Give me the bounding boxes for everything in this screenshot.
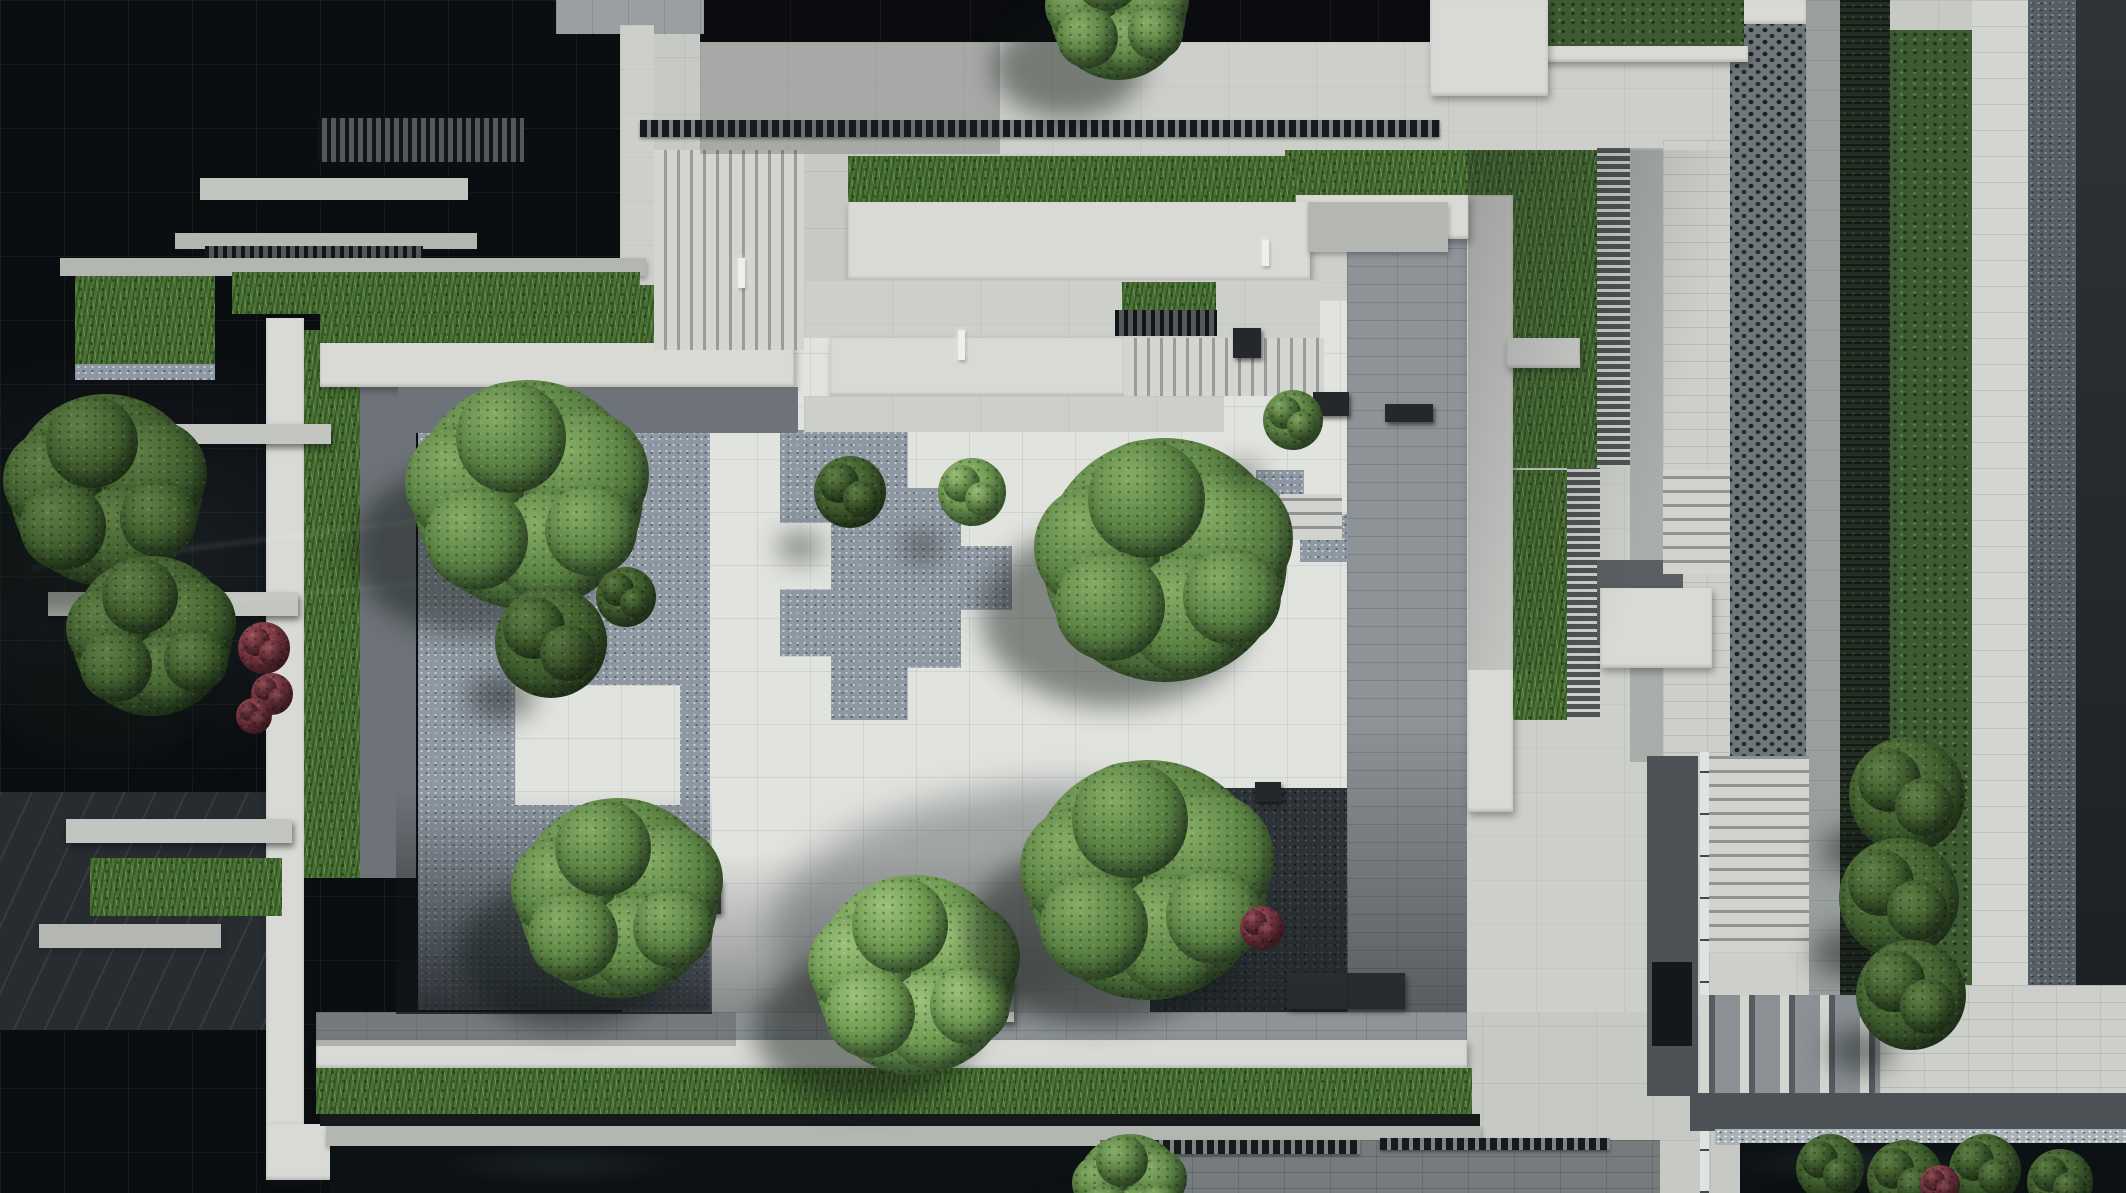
stairs-northwest xyxy=(654,150,804,350)
hedge-blob-a-lobe xyxy=(1895,778,1953,836)
shrub-east-plaza xyxy=(1263,390,1323,450)
planter-grass-north xyxy=(848,156,1296,202)
pool-south xyxy=(330,1146,1100,1193)
gravel-planter-edge xyxy=(75,364,215,380)
shadow-gap-south xyxy=(320,1114,1480,1126)
tree-garden-northwest-lobe xyxy=(545,484,637,576)
grass-planter-b xyxy=(232,272,640,314)
pool-plant-c-lobe xyxy=(1978,1159,2014,1193)
shrub-red-bed-lobe xyxy=(1258,921,1280,943)
tree-garden-center-lobe xyxy=(852,877,948,973)
bridge-connector xyxy=(1430,0,1548,96)
tree-garden-northeast-lobe xyxy=(1183,548,1281,646)
grass-tuft-north-shadow xyxy=(901,533,942,561)
shrub-red-bed-shadow xyxy=(1199,974,1226,992)
seat-cube-a xyxy=(1233,328,1261,358)
shrub-red-c xyxy=(236,698,272,734)
tree-pond-lower-lobe xyxy=(80,630,152,702)
pool-plant-a xyxy=(1796,1134,1864,1193)
shrub-red-c-lobe xyxy=(250,711,268,729)
pool-plant-d xyxy=(2027,1149,2093,1193)
dark-deck-southeast xyxy=(1690,1093,2126,1131)
tree-pond-lower-lobe xyxy=(102,558,179,635)
pond-bridge-c xyxy=(66,819,292,843)
wall-top-left xyxy=(620,25,654,285)
shrub-ball-north-shadow xyxy=(778,532,822,562)
entry-path-lower xyxy=(804,396,1224,432)
grass-tuft-north-lobe xyxy=(965,482,999,516)
shrub-east-plaza-lobe xyxy=(1287,411,1317,441)
stone-path-far-east xyxy=(1972,0,2028,1090)
tree-garden-southwest xyxy=(518,798,718,998)
tree-garden-southwest-lobe xyxy=(633,888,713,968)
tree-pond-upper-lobe xyxy=(120,480,197,557)
shrub-red-bed xyxy=(1240,906,1284,950)
shadow-right-plaza xyxy=(1468,150,1730,670)
grass-planter-a xyxy=(75,276,215,364)
aerial-courtyard-photo xyxy=(0,0,2126,1193)
hedge-blob-b-lobe xyxy=(1887,880,1947,940)
tree-garden-northwest-lobe xyxy=(425,487,529,591)
grass-strip-west xyxy=(304,330,360,878)
tree-garden-center-lobe xyxy=(825,968,915,1058)
stairs-southeast xyxy=(1709,756,1809,952)
white-paver-patch xyxy=(515,685,680,805)
tree-garden-northwest-lobe xyxy=(456,382,566,492)
tree-garden-southeast xyxy=(1028,760,1268,1000)
grass-pond-south xyxy=(90,858,282,916)
path-light-c xyxy=(1262,240,1269,266)
tree-over-roof-lobe xyxy=(1128,5,1182,59)
path-light-a xyxy=(738,258,745,288)
tree-bottom-edge xyxy=(1076,1134,1184,1193)
shrub-red-a-shadow xyxy=(198,692,229,713)
hedge-blob-c-lobe xyxy=(1900,979,1955,1034)
grass-tuft-north xyxy=(938,458,1006,526)
perforated-pergola-roof xyxy=(1730,24,1806,762)
pond-bridge-d xyxy=(39,924,221,948)
shrub-ball-small-lobe xyxy=(620,588,650,618)
pool-plant-a-lobe xyxy=(1823,1158,1857,1192)
tree-bottom-edge-lobe xyxy=(1096,1135,1148,1187)
stairs-entry-east xyxy=(1124,338,1324,396)
hedge-blob-a xyxy=(1849,737,1965,853)
tree-pond-lower-lobe xyxy=(164,628,228,692)
chevron-grate-mid xyxy=(1115,310,1217,336)
shrub-red-a-lobe xyxy=(259,640,285,666)
tree-garden-southwest-lobe xyxy=(528,891,618,981)
shrub-red-c-shadow xyxy=(193,764,215,779)
tree-garden-southeast-lobe xyxy=(1040,872,1148,980)
planter-wall-north xyxy=(848,202,1310,280)
tree-over-roof-lobe xyxy=(1057,7,1118,68)
hedge-top-right xyxy=(1548,0,1744,46)
wall-void-southeast xyxy=(1652,962,1692,1046)
hedge-wall-slab xyxy=(1540,46,1748,62)
bench-grate-south-b xyxy=(1380,1138,1610,1150)
shadow-upper-walkway xyxy=(700,42,1000,154)
tree-garden-southwest-lobe xyxy=(555,800,651,896)
pool-plant-red xyxy=(1920,1165,1960,1193)
shrub-ball-north xyxy=(814,456,886,528)
tree-garden-northeast-lobe xyxy=(1088,440,1205,557)
gravel-band-far-east xyxy=(2028,0,2076,1090)
shrub-red-a xyxy=(238,622,290,674)
pond-slab-a xyxy=(200,178,468,200)
bench-gray-walkway xyxy=(1385,404,1433,422)
pergola-slats-a xyxy=(318,118,524,162)
shrub-ball-large xyxy=(495,586,607,698)
court-wall-west xyxy=(266,318,304,1180)
tree-garden-northeast-lobe xyxy=(1055,551,1165,661)
shrub-red-b-shadow xyxy=(209,740,234,757)
pool-plant-red-lobe xyxy=(1936,1179,1956,1193)
shadow-gray-walkway xyxy=(1347,720,1467,1012)
planter-wall-mid xyxy=(830,338,1124,396)
charcoal-edge xyxy=(2076,0,2126,992)
shrub-ball-north-lobe xyxy=(843,481,879,517)
shrub-ball-small xyxy=(596,567,656,627)
tree-over-roof xyxy=(1050,0,1186,80)
tree-pond-upper-lobe xyxy=(46,396,138,488)
tree-garden-southeast-lobe xyxy=(1072,762,1187,877)
planter-wall-north-shaded xyxy=(1308,202,1448,252)
path-light-b xyxy=(958,330,965,360)
planter-grass-mid xyxy=(1122,282,1216,310)
hedge-blob-c xyxy=(1856,940,1966,1050)
